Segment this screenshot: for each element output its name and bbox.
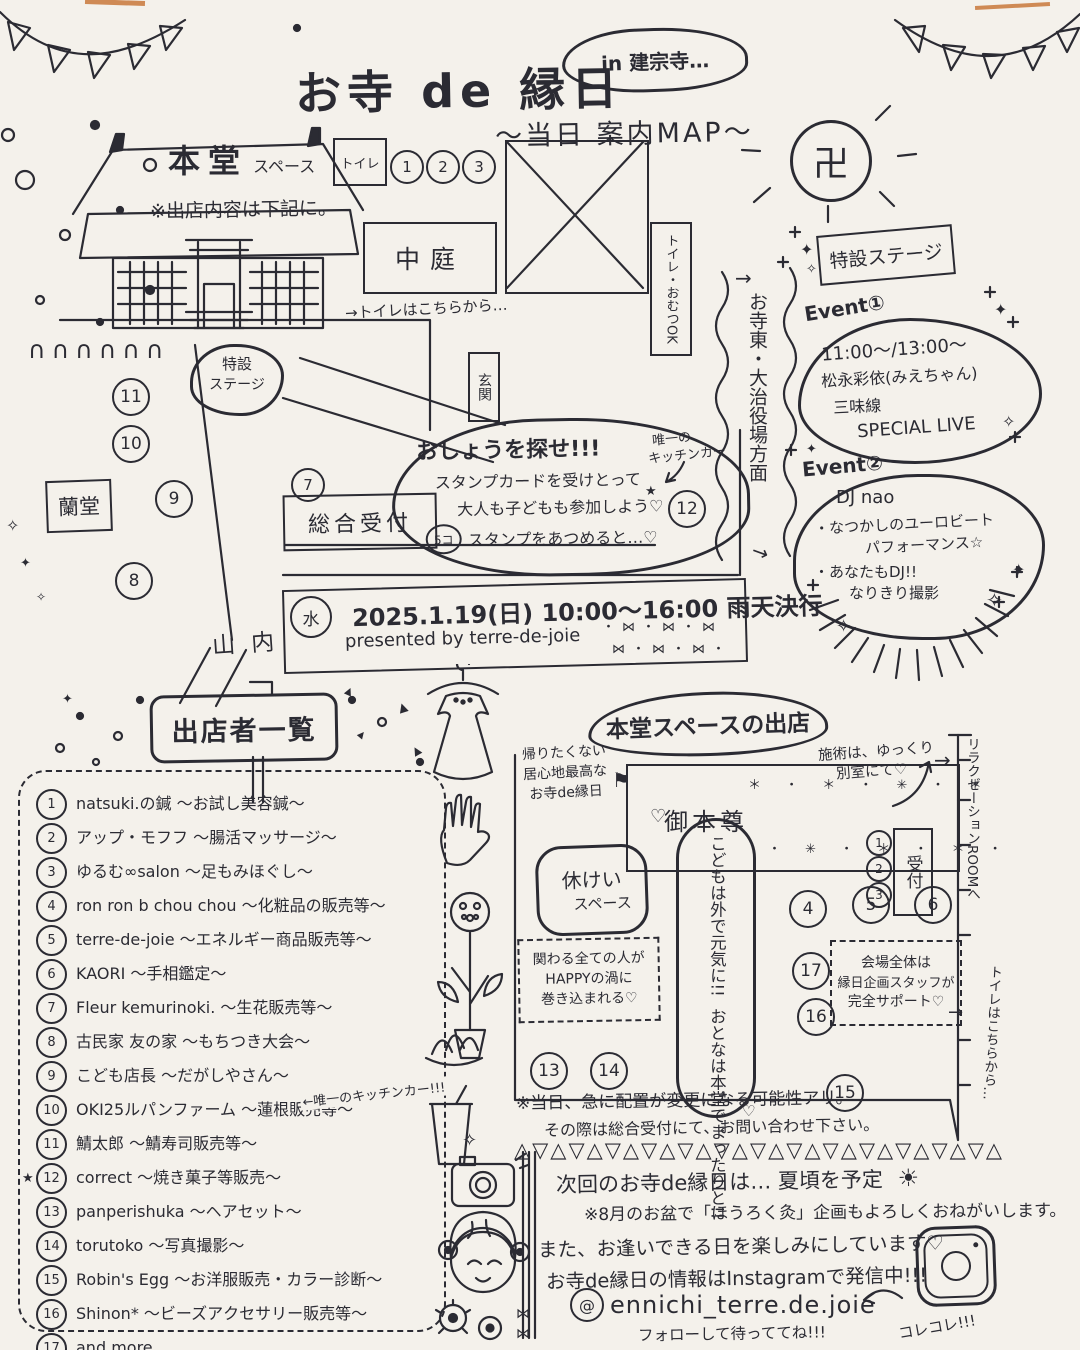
event2-dj: DJ nao — [836, 487, 1042, 508]
vendor-row-13: 13panperishuka 〜ヘアセット〜 — [36, 1197, 434, 1228]
event2-line4: ・あなたもDJ!! — [814, 561, 1042, 582]
rando-hall-box: 蘭堂 — [45, 479, 113, 533]
stage-sign-label: 特設ステージ — [828, 237, 944, 274]
vendor-row-2: 2アップ・モフフ 〜腸活マッサージ〜 — [36, 823, 434, 854]
vendor-row-16: 16Shinon* 〜ビーズアクセサリー販売等〜 — [36, 1299, 434, 1330]
sparkle-icon: ✧ — [836, 616, 851, 637]
vendor-row-1: 1natsuki.の鍼 〜お試し美容鍼〜 — [36, 789, 434, 820]
follow-note: フォローして待っててね!!! — [638, 1320, 826, 1345]
vendor-row-8: 8古民家 友の家 〜もちつき大会〜 — [36, 1027, 434, 1058]
stamp-line2: スタンプカードを受けとって — [434, 464, 746, 493]
courtyard-label: 中庭 — [395, 240, 465, 276]
courtyard-box: 中庭 — [363, 222, 497, 294]
bow-doodles-2: ⋈・⋈・⋈・ — [612, 638, 732, 657]
next-event-note: 次回のお寺de縁日は… 夏頃を予定 ☀ — [556, 1163, 920, 1199]
star-icon: ★ — [645, 484, 657, 499]
vendor-row-17: 17and more… — [36, 1333, 434, 1350]
hondo-section-title: 本堂スペースの出店 — [605, 703, 810, 744]
kids-note-bubble: こどもは外で元気に!! おとなは本堂でまったりと!! — [676, 818, 756, 1118]
sparkle-icon: ✧ — [986, 588, 1003, 612]
support-note-box: 会場全体は 縁日企画スタッフが 完全サポート♡ — [830, 940, 962, 1026]
bow-icon: ⋈ — [516, 1306, 530, 1322]
rest-space-box: 休けい スペース — [534, 843, 649, 937]
east-direction-label: お寺東・大治役場方面 — [744, 292, 771, 542]
kids-note-line1: こどもは外で元気に!! — [707, 835, 726, 997]
stage-circle: 特設 ステージ — [190, 344, 284, 416]
toilet-omutsu-box: トイレ・おむつOK — [650, 222, 692, 356]
hondo-title: 本堂 — [168, 142, 248, 180]
star-icon: ★ — [22, 1171, 34, 1186]
hondo-badge-4: 4 — [789, 890, 827, 928]
vendor-list-sign-label: 出店者一覧 — [171, 707, 317, 749]
hondo-badge-13: 13 — [530, 1052, 568, 1090]
vendor-row-7: 7Fleur kemurinoki. 〜生花販売等〜 — [36, 993, 434, 1024]
stage-circle-line1: 特設 — [193, 353, 281, 374]
vendor-row-15: 15Robin's Egg 〜お洋服販売・カラー診断〜 — [36, 1265, 434, 1296]
sparkle-icon: ✦ — [20, 556, 31, 571]
event2-line5: なりきり撮影 — [834, 582, 1042, 603]
map-badge-10: 10 — [112, 425, 150, 463]
map-badge-12: 12 — [668, 490, 706, 528]
flower-bouquet-icon — [420, 872, 520, 1067]
sparkle-icon: ✧ — [1002, 412, 1015, 431]
water-badge: 水 — [290, 596, 332, 638]
sparkle-icon: ✧ — [462, 1130, 477, 1151]
hondo-badge-14: 14 — [590, 1052, 628, 1090]
happy-note-box: 関わる全ての人が HAPPYの渦に 巻き込まれる♡ — [517, 937, 660, 1023]
sun-doodle-icon: ☀ — [897, 1164, 919, 1192]
hondo-badge-5: 5 — [852, 886, 890, 924]
hondo-badge-6: 6 — [914, 886, 952, 924]
manji-icon: 卍 — [813, 135, 849, 187]
flyer-sheet: お寺 de 縁日 〜当日 案内MAP〜 in 建宗寺… 卍 本堂 スペース ※出… — [0, 0, 1080, 1350]
vendor-row-4: 4ron ron b chou chou 〜化粧品の販売等〜 — [36, 891, 434, 922]
sparkle-icon: ✦ — [1012, 560, 1025, 579]
location-label: in 建宗寺… — [600, 44, 709, 77]
arrow-east-top: → — [735, 266, 752, 290]
sparkle-icon: ✧ — [36, 590, 46, 604]
map-badge-9: 9 — [155, 480, 193, 518]
event1-bubble: 11:00〜/13:00〜 松永彩依(みえちゃん) 三味線 SPECIAL LI… — [798, 318, 1042, 464]
event2-bubble: DJ nao ・なつかしのユーロビート パフォーマンス☆ ・あなたもDJ!! な… — [793, 474, 1045, 640]
stamp-count-badge: 5コ — [425, 524, 462, 555]
hondo-title-sub: スペース — [253, 157, 315, 176]
sparkle-icon: ✦ — [62, 692, 73, 707]
relax-arrow: → — [934, 748, 951, 772]
heart-icon: ♡ — [650, 806, 666, 827]
toilet-box: トイレ — [333, 138, 387, 186]
instagram-icon — [915, 1225, 998, 1308]
map-badge-3: 3 — [462, 150, 496, 184]
hand-icon — [420, 788, 510, 873]
vendor-row-5: 5terre-de-joie 〜エネルギー商品販売等〜 — [36, 925, 434, 956]
map-badge-11: 11 — [112, 378, 150, 416]
at-badge: @ — [570, 1288, 604, 1322]
toilet-label: トイレ — [340, 153, 379, 172]
hondo-badge-2: 2 — [866, 856, 892, 882]
genkan-box: 玄関 — [468, 352, 500, 422]
triangle-divider: △▽△▽△▽△▽△▽△▽△▽△▽△▽△▽△▽△▽△▽△ — [514, 1138, 1062, 1162]
sparkle-icon: ✦ — [994, 300, 1007, 319]
vendor-list-sign: 出店者一覧 — [149, 692, 338, 763]
toilet-arrow: → — [948, 1002, 963, 1023]
toilet-omutsu-label: トイレ・おむつOK — [662, 234, 681, 344]
hondo-reception-label: 受付 — [901, 855, 926, 889]
stamp-line4: スタンプをあつめると…♡ — [468, 523, 658, 550]
hondo-space-label: 本堂 スペース — [168, 136, 315, 182]
sparkle-icon: ✧ — [806, 262, 817, 277]
vendor-row-12: ★ 12correct 〜焼き菓子等販売〜 — [36, 1163, 434, 1194]
vendor-row-3: 3ゆるむ∞salon 〜足もみほぐし〜 — [36, 857, 434, 888]
hondo-badge-17: 17 — [792, 952, 830, 990]
stage-circle-line2: ステージ — [193, 374, 281, 394]
vendor-row-14: 14torutoko 〜写真撮影〜 — [36, 1231, 434, 1262]
closed-block — [505, 140, 649, 294]
rando-label: 蘭堂 — [57, 490, 100, 521]
hondo-note: ※出店内容は下記に。 — [150, 193, 337, 223]
relax-room-label: リラクゼーションROOMへ — [962, 737, 982, 917]
hondo-badge-1: 1 — [866, 830, 892, 856]
sannai-label: 山内 — [211, 621, 291, 660]
houroku-note: ※8月のお盆で「ほうろく灸」企画もよろしくおねがいします。 — [584, 1196, 1067, 1225]
vendor-row-11: 11鯖太郎 〜鯖寿司販売等〜 — [36, 1129, 434, 1160]
sun-icon: 卍 — [790, 120, 872, 202]
genkan-label: 玄関 — [474, 373, 494, 401]
bow-doodles-1: ・⋈・⋈・⋈ — [602, 616, 722, 635]
sparkle-icon: ✦ — [806, 442, 817, 457]
bow-icon: ⋈ — [516, 1326, 530, 1342]
vendor-row-6: 6KAORI 〜手相鑑定〜 — [36, 959, 434, 990]
sparkle-icon: ✦ — [800, 240, 813, 259]
map-badge-8: 8 — [115, 562, 153, 600]
sparkle-icon: ✧ — [6, 516, 19, 535]
vendor-list-box: 1natsuki.の鍼 〜お試し美容鍼〜 2アップ・モフフ 〜腸活マッサージ〜 … — [18, 770, 446, 1332]
map-badge-2: 2 — [426, 150, 460, 184]
instagram-handle: @ ennichi_terre.de.joie — [570, 1288, 876, 1322]
fence-doodle: ∩∩∩∩∩∩ — [28, 336, 169, 364]
map-badge-1: 1 — [390, 150, 424, 184]
